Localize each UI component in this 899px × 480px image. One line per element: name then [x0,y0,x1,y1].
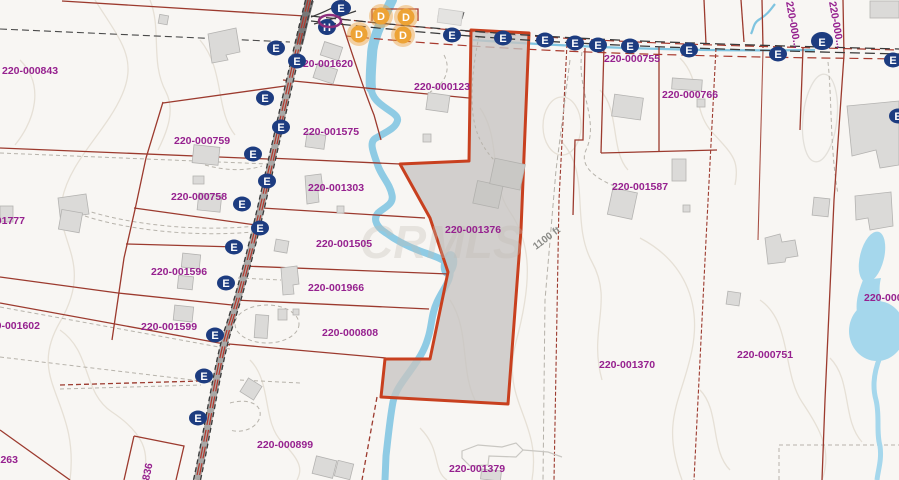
svg-text:220-000758: 220-000758 [171,191,227,203]
svg-text:220-001505: 220-001505 [316,238,372,250]
svg-text:E: E [249,149,256,161]
svg-text:D: D [399,30,407,42]
svg-text:220-000766: 220-000766 [662,89,718,101]
svg-text:220-001263: 220-001263 [0,454,18,466]
svg-text:D: D [402,12,410,24]
svg-text:E: E [774,49,781,61]
svg-text:E: E [222,278,229,290]
svg-text:E: E [594,40,601,52]
svg-text:E: E [541,35,548,47]
svg-text:E: E [272,43,279,55]
svg-text:220-001379: 220-001379 [449,463,505,475]
svg-text:E: E [685,45,692,57]
svg-text:E: E [194,413,201,425]
svg-text:E: E [277,122,284,134]
svg-text:E: E [818,37,825,49]
svg-text:E: E [448,30,455,42]
svg-text:E: E [211,330,218,342]
svg-text:220-001777: 220-001777 [0,215,25,227]
svg-text:E: E [238,199,245,211]
svg-text:220-001587: 220-001587 [612,181,668,193]
svg-text:220-000751: 220-000751 [737,349,793,361]
svg-text:E: E [256,223,263,235]
svg-text:220-000808: 220-000808 [322,327,378,339]
svg-text:E: E [293,56,300,68]
svg-text:220-001376: 220-001376 [445,224,501,236]
svg-text:E: E [200,371,207,383]
svg-text:220-000123: 220-000123 [414,81,470,93]
svg-text:E: E [230,242,237,254]
svg-text:E: E [337,3,344,15]
svg-text:220-001602: 220-001602 [0,320,40,332]
svg-text:220-001599: 220-001599 [141,321,197,333]
svg-text:D: D [355,29,363,41]
svg-text:220-001575: 220-001575 [303,126,359,138]
svg-text:220-001966: 220-001966 [308,282,364,294]
svg-text:E: E [263,176,270,188]
svg-text:220-001370: 220-001370 [599,359,655,371]
svg-text:220-001596: 220-001596 [151,266,207,278]
svg-text:E: E [894,111,899,123]
svg-text:220-001303: 220-001303 [308,182,364,194]
svg-text:E: E [626,41,633,53]
svg-text:E: E [571,38,578,50]
svg-text:220-000899: 220-000899 [257,439,313,451]
svg-text:E: E [499,33,506,45]
svg-text:E: E [261,93,268,105]
svg-text:D: D [377,11,385,23]
svg-text:220-000759: 220-000759 [174,135,230,147]
svg-text:220-000755: 220-000755 [604,53,660,65]
svg-text:E: E [889,55,896,67]
svg-text:220-000768: 220-000768 [864,292,899,304]
svg-text:220-000843: 220-000843 [2,65,58,77]
